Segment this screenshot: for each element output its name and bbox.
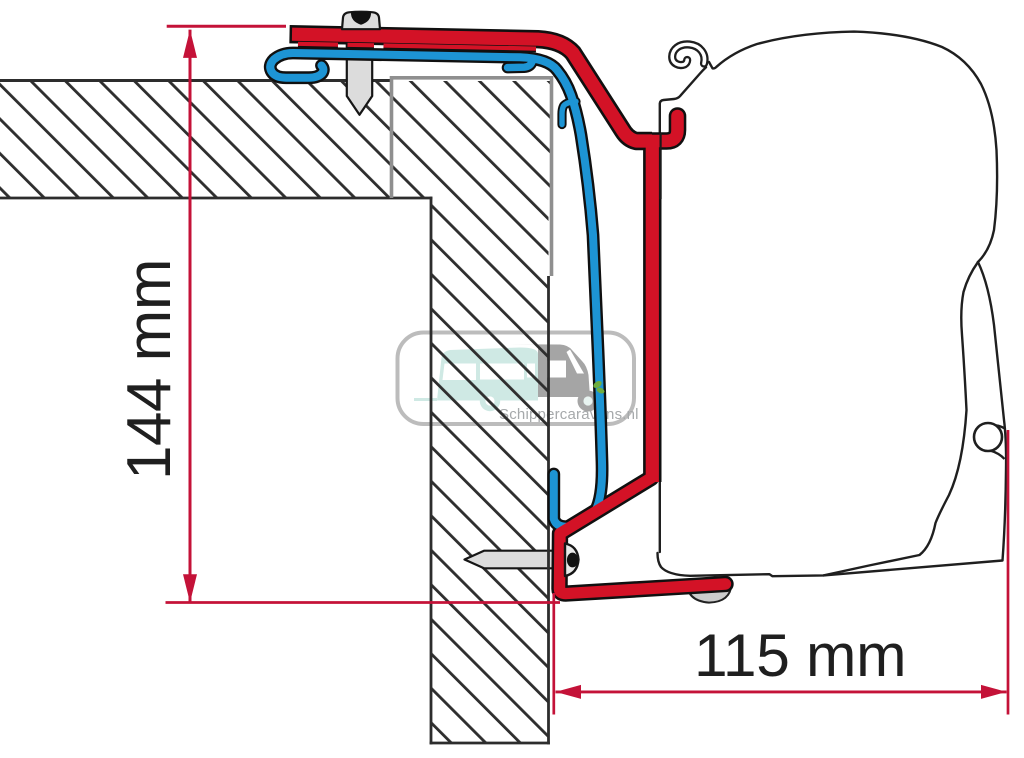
svg-text:115 mm: 115 mm	[694, 621, 906, 689]
svg-text:144 mm: 144 mm	[115, 259, 184, 480]
